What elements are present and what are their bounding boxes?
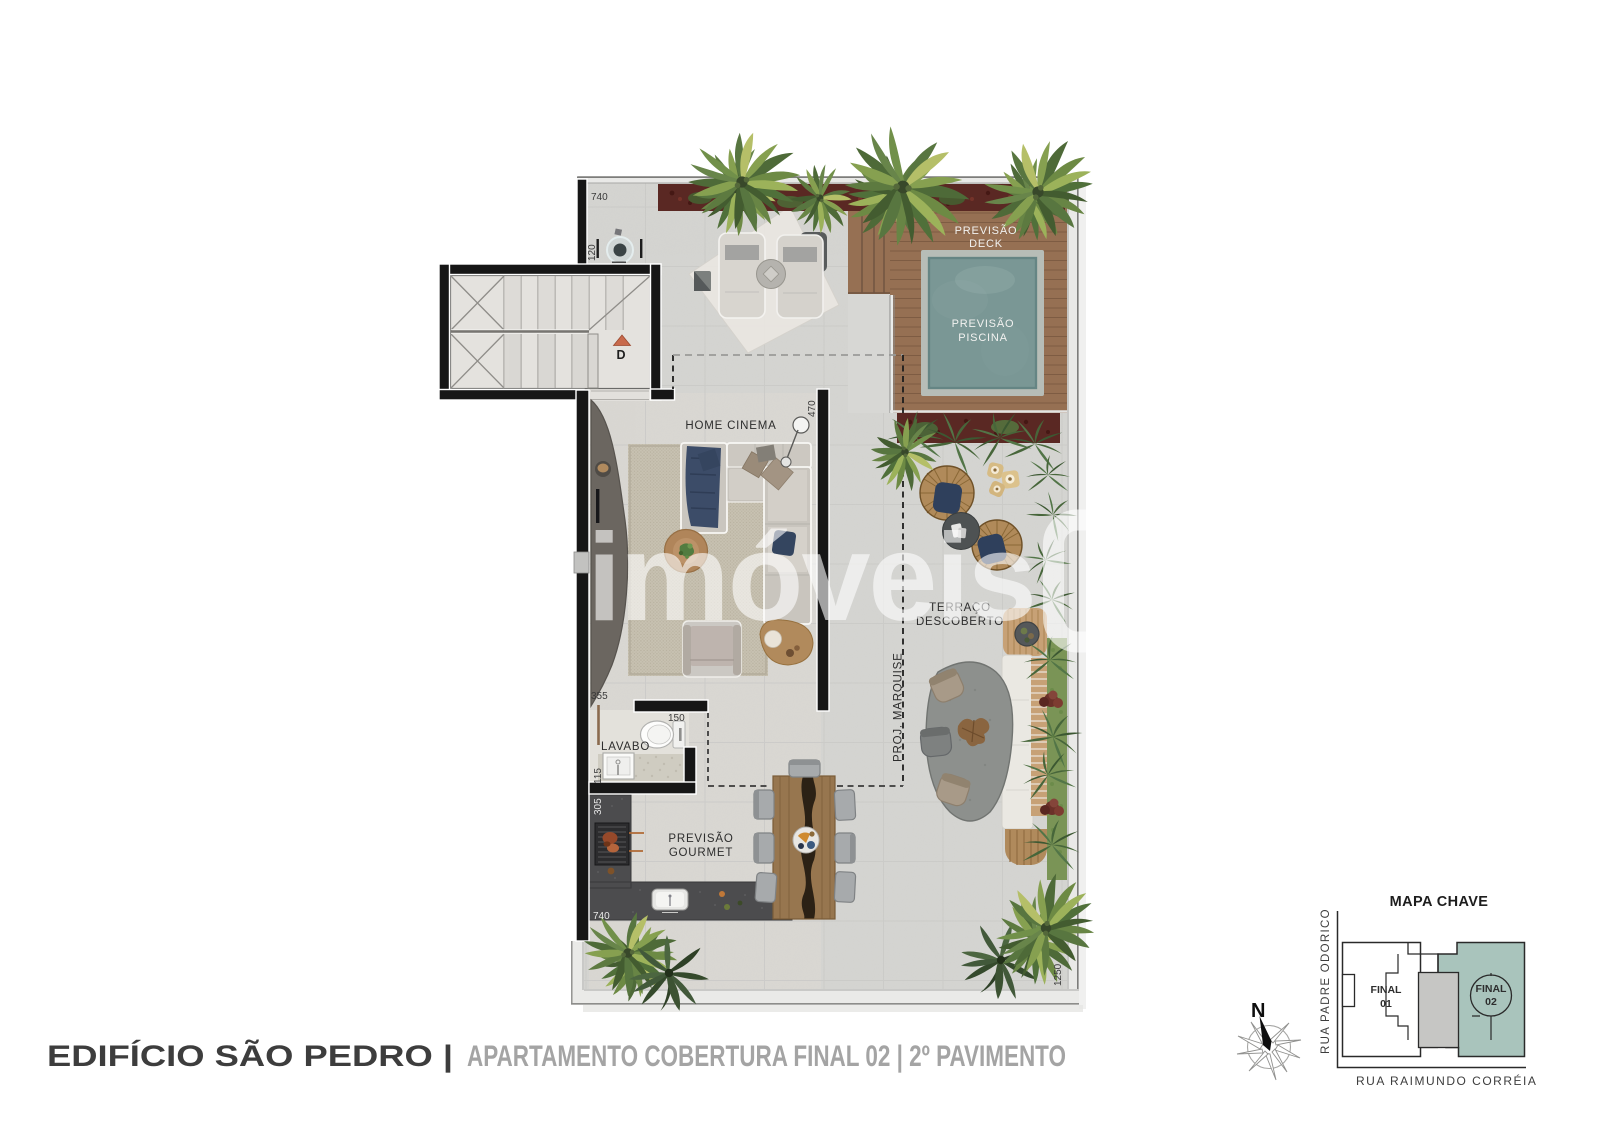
svg-text:115: 115	[593, 768, 604, 784]
svg-text:1250: 1250	[1053, 963, 1064, 986]
svg-text:N: N	[1251, 1000, 1265, 1022]
svg-text:FINAL: FINAL	[1476, 983, 1507, 995]
svg-text:PROJ. MARQUISE: PROJ. MARQUISE	[893, 652, 905, 762]
svg-text:02: 02	[1485, 996, 1497, 1008]
svg-text:LAVABO: LAVABO	[601, 741, 650, 753]
svg-text:RUA PADRE ODORICO: RUA PADRE ODORICO	[1320, 908, 1332, 1054]
svg-text:RUA RAIMUNDO CORRÉIA: RUA RAIMUNDO CORRÉIA	[1356, 1073, 1537, 1088]
svg-text:01: 01	[1380, 998, 1392, 1010]
svg-text:MAPA CHAVE: MAPA CHAVE	[1390, 894, 1489, 910]
svg-text:150: 150	[668, 713, 685, 724]
svg-text:PREVISÃO: PREVISÃO	[668, 832, 733, 845]
svg-text:DECK: DECK	[969, 238, 1003, 250]
svg-text:PREVISÃO: PREVISÃO	[955, 224, 1018, 237]
svg-text:355: 355	[591, 691, 608, 702]
svg-text:740: 740	[591, 192, 608, 203]
svg-text:EDIFÍCIO SÃO PEDRO |: EDIFÍCIO SÃO PEDRO |	[47, 1039, 453, 1073]
svg-text:470: 470	[807, 400, 818, 417]
svg-text:D: D	[617, 348, 626, 362]
svg-text:FINAL: FINAL	[1371, 984, 1402, 996]
svg-text:740: 740	[593, 911, 610, 922]
svg-text:HOME CINEMA: HOME CINEMA	[685, 420, 776, 432]
svg-text:305: 305	[593, 798, 604, 815]
svg-text:PISCINA: PISCINA	[958, 332, 1008, 344]
svg-text:APARTAMENTO COBERTURA FINAL 02: APARTAMENTO COBERTURA FINAL 02 | 2º PAVI…	[467, 1040, 1066, 1073]
svg-text:PREVISÃO: PREVISÃO	[952, 317, 1015, 330]
svg-text:GOURMET: GOURMET	[669, 847, 733, 859]
svg-text:imóveis: imóveis	[587, 509, 1035, 647]
svg-text:120: 120	[587, 244, 598, 261]
